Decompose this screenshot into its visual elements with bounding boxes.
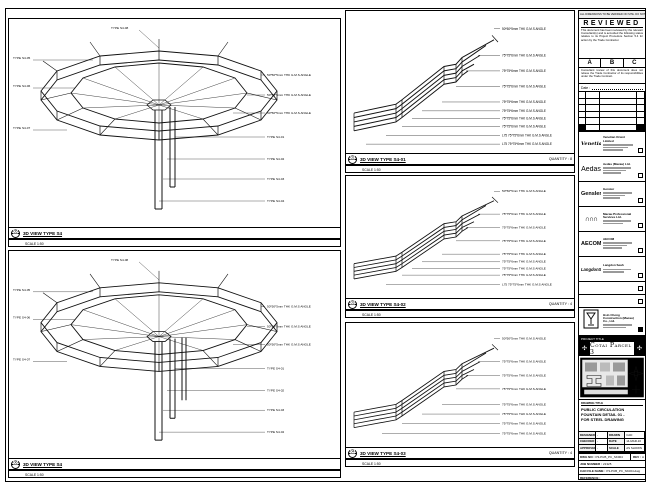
annotation-label: TYPE S4-02	[267, 388, 284, 392]
company-row-aedas: Aedas Aedas (Macau) Ltd.	[579, 157, 645, 182]
company-name: Gensler	[603, 188, 636, 191]
annotation-label: L75 75*75*6mm THK G.M.S ANGLE	[502, 133, 553, 137]
status-checkbox	[638, 198, 643, 203]
annotation-label: 50*50*5mm THK G.M.S ANGLE	[267, 111, 311, 115]
annotation-label: 50*50*5mm THK G.M.S ANGLE	[502, 189, 546, 193]
cad-file-label: CAD FILE NAME :	[580, 469, 605, 473]
drawing-title-label: DRAWING TITLE	[581, 401, 643, 406]
revision-table	[579, 92, 645, 132]
gensler-logo: Gensler	[581, 191, 601, 197]
job-number-row: JOB NUMBER : 21325	[579, 460, 645, 467]
status-checkbox	[638, 223, 643, 228]
status-checkbox	[638, 273, 643, 278]
reference-row: REFERENCE :	[579, 474, 645, 481]
view-scale: SCALE 1:50	[25, 473, 44, 477]
date-value: 14-MAR-16	[625, 439, 645, 446]
annotation-label: 50*50*5mm THK G.M.S ANGLE	[267, 305, 311, 309]
drawing-sheet: 50*50*5mm THK G.M.S ANGLE 50*50*5mm THK …	[0, 0, 650, 488]
view-quantity: QUANTITY : 4	[549, 451, 572, 455]
company-name: AECOM	[603, 238, 636, 241]
cad-file-value: P3-PUB_PC_SK004.dwg	[606, 469, 640, 473]
detail-reference-bubble: 06	[11, 460, 20, 469]
date-fill-line	[592, 89, 643, 90]
annotation-label: 75*75*6mm THK G.M.S ANGLE	[502, 266, 546, 270]
reviewed-stamp: REVIEWED This document has been reviewed…	[579, 19, 645, 59]
panel-footer: 06 3D VIEW TYPE S4 SCALE 1:50	[9, 458, 340, 477]
annotation-label: TYPE S4-03	[267, 177, 284, 181]
company-name: Aedas (Macau) Ltd.	[603, 163, 636, 166]
stamp-date-row: Date :	[579, 84, 645, 92]
panel-footer: 02 3D VIEW TYPE S4-01 QUANTITY : 8 SCALE…	[346, 153, 574, 172]
stamp-disclaimer: Consultant review of this document does …	[579, 68, 645, 84]
annotation-label: 75*75*6mm THK G.M.S ANGLE	[502, 84, 547, 88]
view-panel-mid-1: 50*50*5mm THK G.M.S ANGLE 75*75*6mm THK …	[345, 10, 575, 173]
scale-value: AS SHOWN	[625, 445, 645, 452]
detail-reference-bubble: 02	[348, 155, 357, 164]
note-strip: ALL DIMENSIONS TO BE VERIFIED ON SITE. D…	[579, 11, 645, 19]
view-quantity: QUANTITY : 4	[549, 302, 572, 306]
approved-label: APPROVED	[579, 445, 596, 452]
credits-table: DESIGNED - DRAWN CAD CHECKED - DATE 14-M…	[579, 432, 645, 453]
company-row-aecom: AECOM AECOM	[579, 232, 645, 257]
dwg-no-value: P3-PUB_PC_SK004	[596, 455, 623, 459]
fine-print-line	[603, 269, 631, 271]
annotation-label: 75*75*6mm THK G.M.S ANGLE	[502, 117, 547, 121]
banner-ornament-right: ✣	[634, 342, 645, 355]
designed-label: DESIGNED	[579, 432, 596, 439]
annotation-label: TYPE S4-05	[13, 56, 30, 60]
annotation-label: 50*50*5mm THK G.M.S ANGLE	[267, 73, 311, 77]
annotation-label: TYPE S4-01	[267, 135, 284, 139]
annotation-label: TYPE S4-03	[267, 408, 284, 412]
company-row-empty-1	[579, 282, 645, 295]
view-panel-left-1: 50*50*5mm THK G.M.S ANGLE 50*50*5mm THK …	[8, 18, 341, 247]
detail-reference-bubble: 04	[348, 449, 357, 458]
status-checkbox	[638, 148, 643, 153]
langdon-seah-logo: LangdonSeah	[581, 267, 601, 272]
annotation-label: 75*75*6mm THK G.M.S ANGLE	[502, 412, 546, 416]
reference-label: REFERENCE :	[580, 476, 600, 480]
annotation-label: L75 75*75*6mm THK G.M.S ANGLE	[502, 142, 553, 146]
aedas-logo: Aedas	[581, 166, 601, 173]
annotation-label: 75*75*6mm THK G.M.S ANGLE	[502, 100, 547, 104]
view-panel-mid-3: 50*50*5mm THK G.M.S ANGLE 75*75*6mm THK …	[345, 322, 575, 467]
annotation-label: TYPE S4-04	[267, 430, 284, 434]
drawing-number-section: DWG NO : P3-PUB_PC_SK004 REV : A JOB NUM…	[579, 453, 645, 481]
view-panel-mid-2: 50*50*5mm THK G.M.S ANGLE 75*75*6mm THK …	[345, 175, 575, 318]
view-title: 3D VIEW TYPE S4-01	[360, 157, 406, 162]
review-grade-row: A B C	[579, 59, 645, 68]
status-checkbox	[638, 173, 643, 178]
annotation-label: TYPE S4-05	[13, 288, 30, 292]
annotation-label: 50*50*5mm THK G.M.S ANGLE	[267, 325, 311, 329]
view-panel-left-2: 50*50*5mm THK G.M.S ANGLE 50*50*5mm THK …	[8, 250, 341, 478]
view-title: 3D VIEW TYPE S4	[23, 462, 62, 467]
drawing-title-line-3: FOR STEEL DRAWING	[581, 417, 643, 422]
dwg-no-row: DWG NO : P3-PUB_PC_SK004 REV : A	[579, 453, 645, 460]
fine-print-line	[603, 195, 625, 197]
company-name: Macau Professional Services Ltd.	[603, 213, 636, 220]
annotation-label: TYPE S4-06	[13, 316, 30, 320]
fine-print-line	[603, 147, 628, 149]
reviewed-heading: REVIEWED	[581, 20, 643, 28]
grade-a: A	[579, 59, 601, 67]
company-name: Langdon Seah	[603, 264, 636, 267]
rev-label: REV :	[633, 455, 641, 459]
company-row-venetian: Venetian Venetian Orient Limited	[579, 132, 645, 157]
scale-label: SCALE	[608, 445, 625, 452]
company-name: Hsin Chong Construction (Macau) Co., Ltd…	[603, 314, 636, 324]
status-checkbox-filled	[638, 327, 643, 332]
fine-print-line	[603, 247, 622, 249]
detail-reference-bubble: 05	[11, 229, 20, 238]
fine-print-line	[603, 271, 624, 273]
key-plan	[579, 356, 645, 400]
project-banner: ✣ Cotai Parcel 3 ✣	[579, 342, 645, 356]
job-number-value: 21325	[603, 462, 611, 466]
company-name: Venetian Orient Limited	[603, 136, 636, 143]
fine-print-line	[603, 324, 632, 326]
project-title: Cotai Parcel 3	[590, 342, 634, 355]
hsin-chong-logo	[581, 309, 601, 334]
annotation-label: 75*75*6mm THK G.M.S ANGLE	[502, 124, 547, 128]
checked-label: CHECKED	[579, 439, 596, 446]
view-quantity: QUANTITY : 8	[549, 157, 572, 161]
annotation-label: TYPE S4-06	[13, 84, 30, 88]
annotation-label: 75*75*6mm THK G.M.S ANGLE	[502, 402, 546, 406]
fine-print-line	[603, 172, 621, 174]
annotation-label: 75*75*6mm THK G.M.S ANGLE	[502, 225, 546, 229]
view-scale: SCALE 1:50	[362, 168, 381, 172]
left-2-structure-drawing: 50*50*5mm THK G.M.S ANGLE 50*50*5mm THK …	[9, 251, 340, 458]
mps-arches-logo: ∩∩∩	[581, 216, 601, 223]
annotation-label: 50*50*5mm THK G.M.S ANGLE	[267, 93, 311, 97]
annotation-label: 75*75*6mm THK G.M.S ANGLE	[502, 239, 546, 243]
annotation-label: 75*75*6mm THK G.M.S ANGLE	[502, 69, 547, 73]
view-scale: SCALE 1:50	[362, 313, 381, 317]
fine-print-line	[603, 242, 632, 244]
drawing-title-section: DRAWING TITLE PUBLIC CIRCULATION FOUNTAI…	[579, 400, 645, 432]
checked-value: -	[596, 439, 608, 446]
annotation-label: 50*50*5mm THK G.M.S ANGLE	[267, 343, 311, 347]
key-plan-drawing	[580, 357, 644, 398]
annotation-label: 75*75*6mm THK G.M.S ANGLE	[502, 422, 546, 426]
left-1-structure-drawing: 50*50*5mm THK G.M.S ANGLE 50*50*5mm THK …	[9, 19, 340, 227]
annotation-label: TYPE S4-08	[111, 258, 128, 262]
reviewed-body: This document has been reviewed by the r…	[581, 29, 643, 42]
job-number-label: JOB NUMBER :	[580, 462, 602, 466]
panel-footer: 03 3D VIEW TYPE S4-02 QUANTITY : 4 SCALE…	[346, 298, 574, 317]
mid-3-beam-drawing: 50*50*5mm THK G.M.S ANGLE 75*75*6mm THK …	[346, 323, 574, 447]
company-row-empty-2	[579, 295, 645, 308]
drawn-label: DRAWN	[608, 432, 625, 439]
annotation-label: TYPE S4-07	[13, 357, 30, 361]
fine-print-line	[603, 170, 626, 172]
mid-1-beam-drawing: 50*50*5mm THK G.M.S ANGLE 75*75*6mm THK …	[346, 11, 574, 153]
fine-print-line	[603, 167, 631, 169]
fine-print-line	[603, 245, 627, 247]
title-block: ALL DIMENSIONS TO BE VERIFIED ON SITE. D…	[578, 10, 646, 480]
detail-reference-bubble: 03	[348, 300, 357, 309]
view-scale: SCALE 1:50	[25, 242, 44, 246]
status-checkbox	[638, 286, 643, 291]
panel-footer: 05 3D VIEW TYPE S4 SCALE 1:50	[9, 227, 340, 246]
view-title: 3D VIEW TYPE S4-02	[360, 302, 406, 307]
approved-value: -	[596, 445, 608, 452]
annotation-label: 75*75*6mm THK G.M.S ANGLE	[502, 387, 546, 391]
banner-ornament-left: ✣	[579, 342, 590, 355]
annotation-label: TYPE S4-07	[13, 126, 30, 130]
fine-print-line	[603, 144, 633, 146]
venetian-logo: Venetian	[581, 141, 601, 147]
status-checkbox	[638, 248, 643, 253]
fine-print-line	[603, 220, 631, 222]
cad-file-row: CAD FILE NAME : P3-PUB_PC_SK004.dwg	[579, 467, 645, 474]
annotation-label: TYPE S4-02	[267, 157, 284, 161]
annotation-label: TYPE S4-08	[111, 26, 128, 30]
annotation-label: TYPE S4-01	[267, 366, 284, 370]
drawn-value: CAD	[625, 432, 645, 439]
annotation-label: L75 75*75*6mm THK G.M.S ANGLE	[502, 283, 552, 287]
view-title: 3D VIEW TYPE S4-03	[360, 451, 406, 456]
annotation-label: 50*50*5mm THK G.M.S ANGLE	[502, 27, 547, 31]
designed-value: -	[596, 432, 608, 439]
mid-2-beam-drawing: 50*50*5mm THK G.M.S ANGLE 75*75*6mm THK …	[346, 176, 574, 298]
rev-value: A	[642, 455, 644, 459]
aecom-logo: AECOM	[581, 241, 601, 247]
view-title: 3D VIEW TYPE S4	[23, 231, 62, 236]
annotation-label: 75*75*6mm THK G.M.S ANGLE	[502, 273, 546, 277]
panel-footer: 04 3D VIEW TYPE S4-03 QUANTITY : 4 SCALE…	[346, 447, 574, 466]
fine-print-line	[603, 327, 626, 329]
fine-print-line	[603, 192, 632, 194]
annotation-label: 75*75*6mm THK G.M.S ANGLE	[502, 431, 546, 435]
date-label: Date :	[581, 86, 590, 90]
fine-print-line	[603, 197, 620, 199]
annotation-label: 75*75*6mm THK G.M.S ANGLE	[502, 260, 546, 264]
fine-print-line	[603, 149, 623, 151]
dwg-no-label: DWG NO :	[580, 455, 595, 459]
company-row-contractor: Hsin Chong Construction (Macau) Co., Ltd…	[579, 308, 645, 336]
annotation-label: 75*75*6mm THK G.M.S ANGLE	[502, 373, 546, 377]
view-scale: SCALE 1:50	[362, 462, 381, 466]
company-row-gensler: Gensler Gensler	[579, 182, 645, 207]
annotation-label: 75*75*6mm THK G.M.S ANGLE	[502, 212, 546, 216]
annotation-label: 50*50*5mm THK G.M.S ANGLE	[502, 337, 546, 341]
annotation-label: 75*75*6mm THK G.M.S ANGLE	[502, 252, 546, 256]
company-row-langdon-seah: LangdonSeah Langdon Seah	[579, 257, 645, 282]
company-row-mps: ∩∩∩ Macau Professional Services Ltd.	[579, 207, 645, 232]
annotation-label: 75*75*6mm THK G.M.S ANGLE	[502, 53, 547, 57]
annotation-label: 75*75*6mm THK G.M.S ANGLE	[502, 109, 547, 113]
date-label: DATE	[608, 439, 625, 446]
grade-c: C	[624, 59, 645, 67]
status-checkbox	[638, 299, 643, 304]
grade-b: B	[601, 59, 623, 67]
fine-print-line	[603, 223, 623, 225]
annotation-label: TYPE S4-04	[267, 199, 284, 203]
annotation-label: 75*75*6mm THK G.M.S ANGLE	[502, 360, 546, 364]
